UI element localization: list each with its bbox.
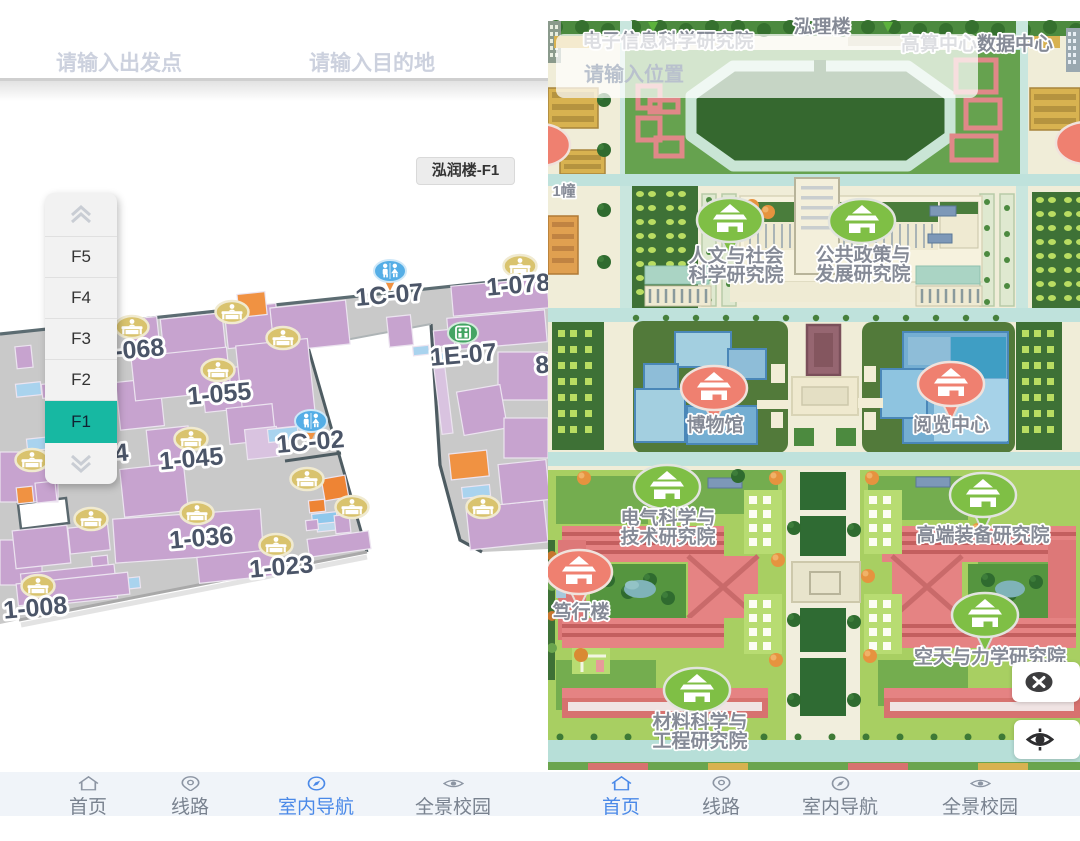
svg-text:公共政策与: 公共政策与 [815,243,910,266]
svg-text:人文与社会: 人文与社会 [688,244,783,267]
svg-text:1-045: 1-045 [158,442,224,475]
svg-text:1-008: 1-008 [2,591,68,624]
svg-text:发展研究院: 发展研究院 [814,262,910,285]
svg-text:1C-07: 1C-07 [354,278,424,312]
svg-text:电气科学与: 电气科学与 [620,506,715,529]
svg-text:1-023: 1-023 [248,550,314,583]
svg-text:1C-02: 1C-02 [275,425,345,459]
svg-text:技术研究院: 技术研究院 [620,525,715,548]
svg-text:1-036: 1-036 [168,521,234,554]
svg-text:8: 8 [534,350,548,379]
svg-text:笃行楼: 笃行楼 [551,600,609,623]
svg-text:工程研究院: 工程研究院 [652,729,747,752]
svg-text:科学研究院: 科学研究院 [688,263,783,286]
svg-text:高端装备研究院: 高端装备研究院 [916,523,1049,546]
svg-text:1E-07: 1E-07 [429,338,498,372]
svg-text:材料科学与: 材料科学与 [652,710,747,733]
svg-text:1-055: 1-055 [186,377,252,410]
svg-text:1幢: 1幢 [552,182,575,200]
svg-text:博物馆: 博物馆 [686,413,743,436]
svg-text:阅览中心: 阅览中心 [913,413,989,436]
svg-text:1-078: 1-078 [485,268,548,301]
